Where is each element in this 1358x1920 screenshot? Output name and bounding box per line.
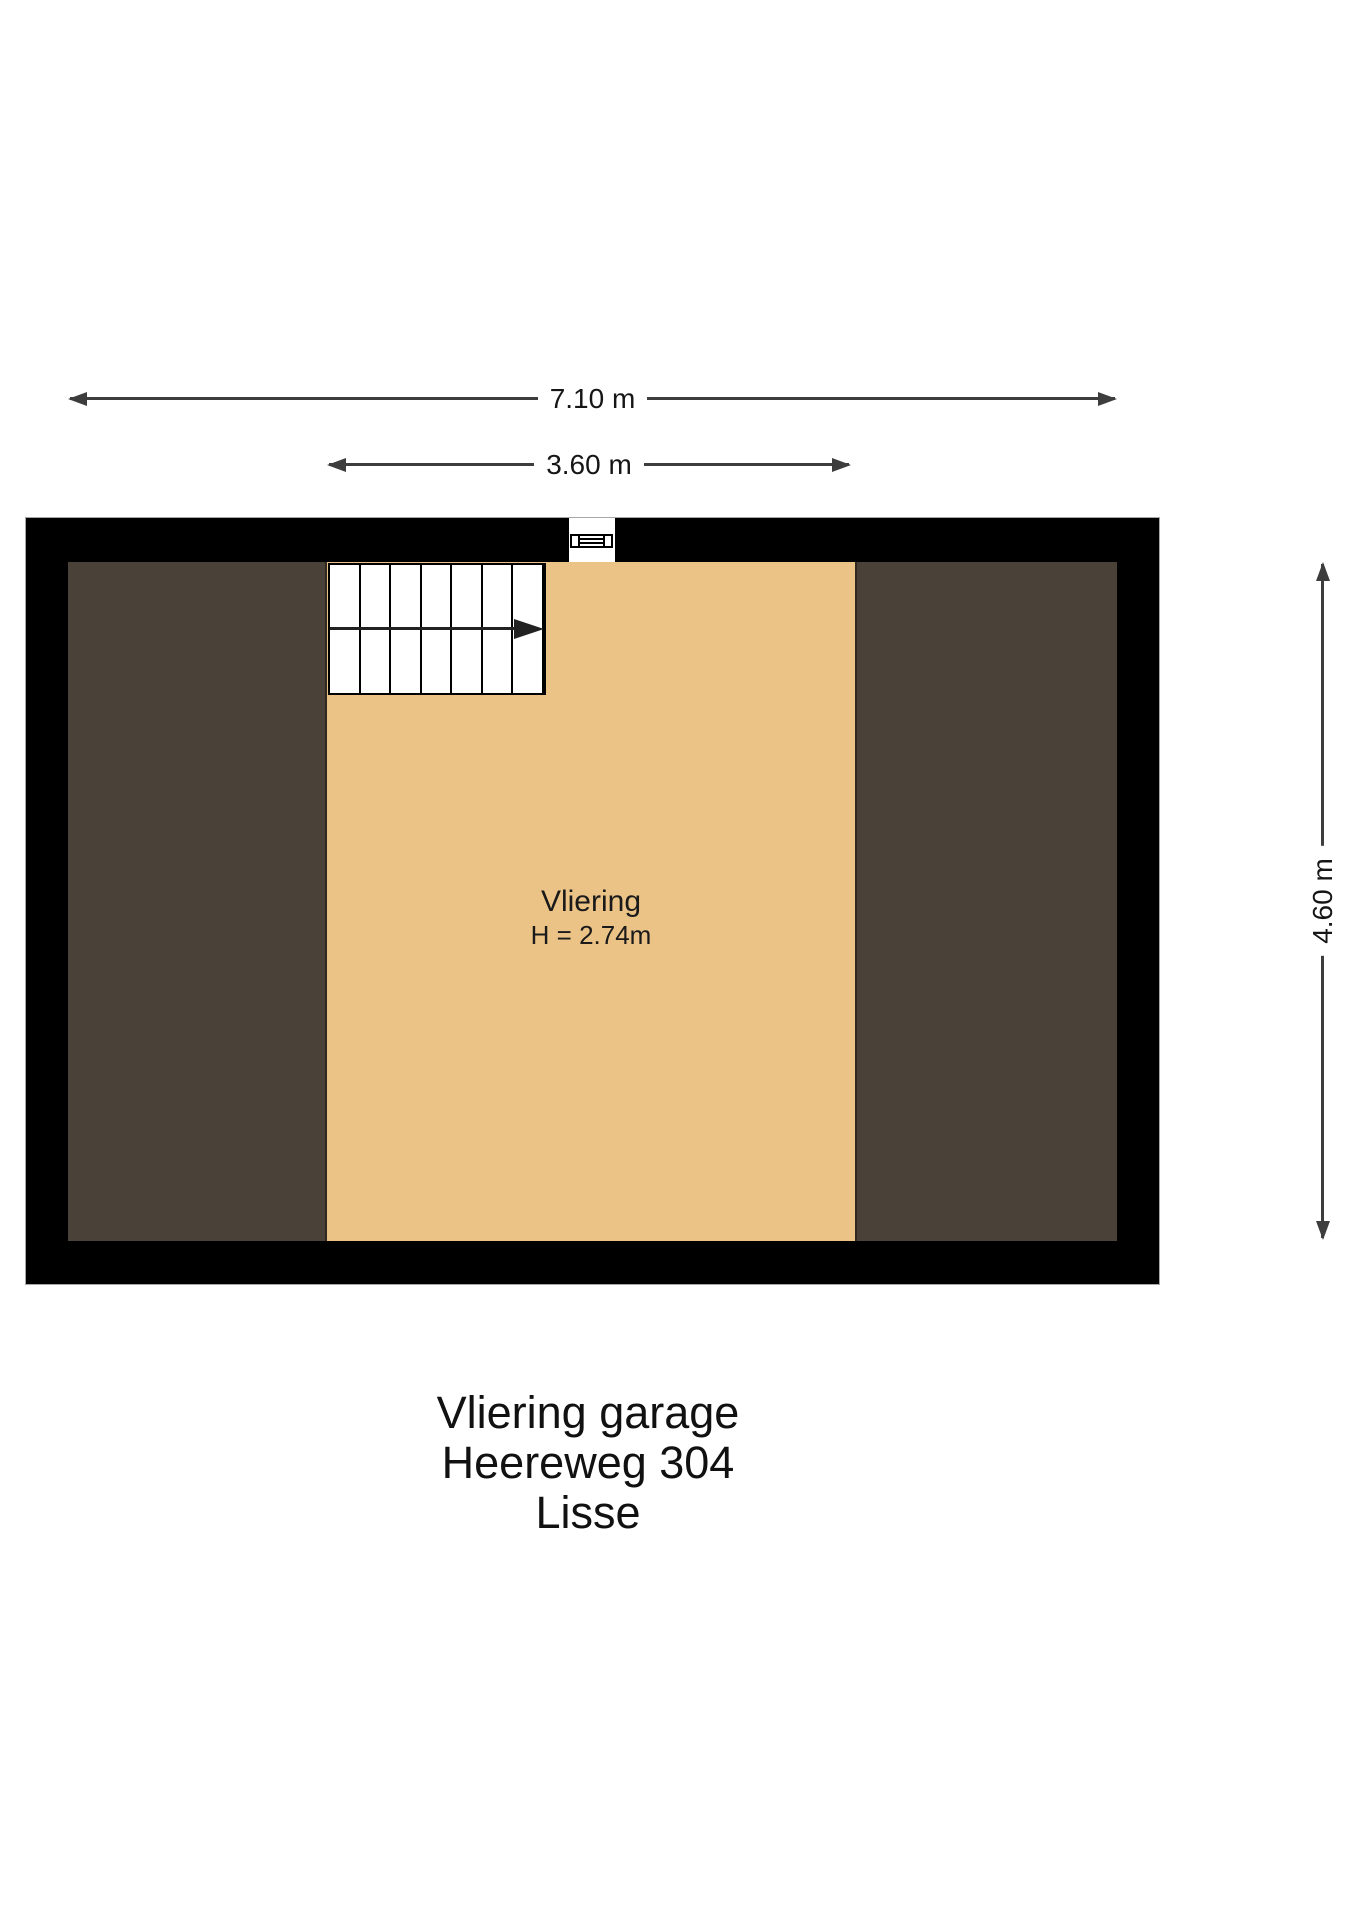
- arrowhead-left-icon: [68, 392, 87, 406]
- window-frame-left: [572, 536, 580, 546]
- stair-direction-arrow-icon: [514, 619, 544, 639]
- address-city: Lisse: [88, 1488, 1088, 1538]
- window-pane-line: [580, 538, 603, 540]
- attic-side-area-left: [68, 562, 325, 1241]
- room-height-label: H = 2.74m: [325, 920, 857, 950]
- dimension-total-height-label: 4.60 m: [1306, 846, 1340, 956]
- dimension-vliering-width: 3.60 m: [327, 450, 851, 480]
- dimension-total-height: 4.60 m: [1308, 562, 1338, 1240]
- dimension-total-width: 7.10 m: [68, 384, 1117, 414]
- window-frame-right: [603, 536, 611, 546]
- address-street: Heereweg 304: [88, 1438, 1088, 1488]
- arrowhead-left-icon: [327, 458, 346, 472]
- plan-title-block: Vliering garage Heereweg 304 Lisse: [88, 1388, 1088, 1538]
- wall-opening: [569, 518, 615, 562]
- room-name: Vliering: [325, 884, 857, 920]
- dimension-vliering-width-label: 3.60 m: [534, 448, 644, 482]
- arrowhead-right-icon: [1098, 392, 1117, 406]
- arrowhead-up-icon: [1316, 562, 1330, 581]
- outer-wall: Vliering H = 2.74m: [26, 518, 1159, 1284]
- room-label: Vliering H = 2.74m: [325, 884, 857, 950]
- window-panes: [580, 536, 603, 546]
- attic-side-area-right: [857, 562, 1117, 1241]
- plan-title: Vliering garage: [88, 1388, 1088, 1438]
- window-pane-line: [580, 542, 603, 544]
- staircase: [328, 563, 546, 695]
- stair-direction-line: [330, 627, 518, 630]
- arrowhead-down-icon: [1316, 1221, 1330, 1240]
- dimension-total-width-label: 7.10 m: [538, 382, 648, 416]
- floorplan-page: 7.10 m 3.60 m 4.60 m: [0, 0, 1358, 1920]
- plan-interior: Vliering H = 2.74m: [68, 562, 1117, 1241]
- window-symbol-icon: [570, 534, 613, 548]
- arrowhead-right-icon: [832, 458, 851, 472]
